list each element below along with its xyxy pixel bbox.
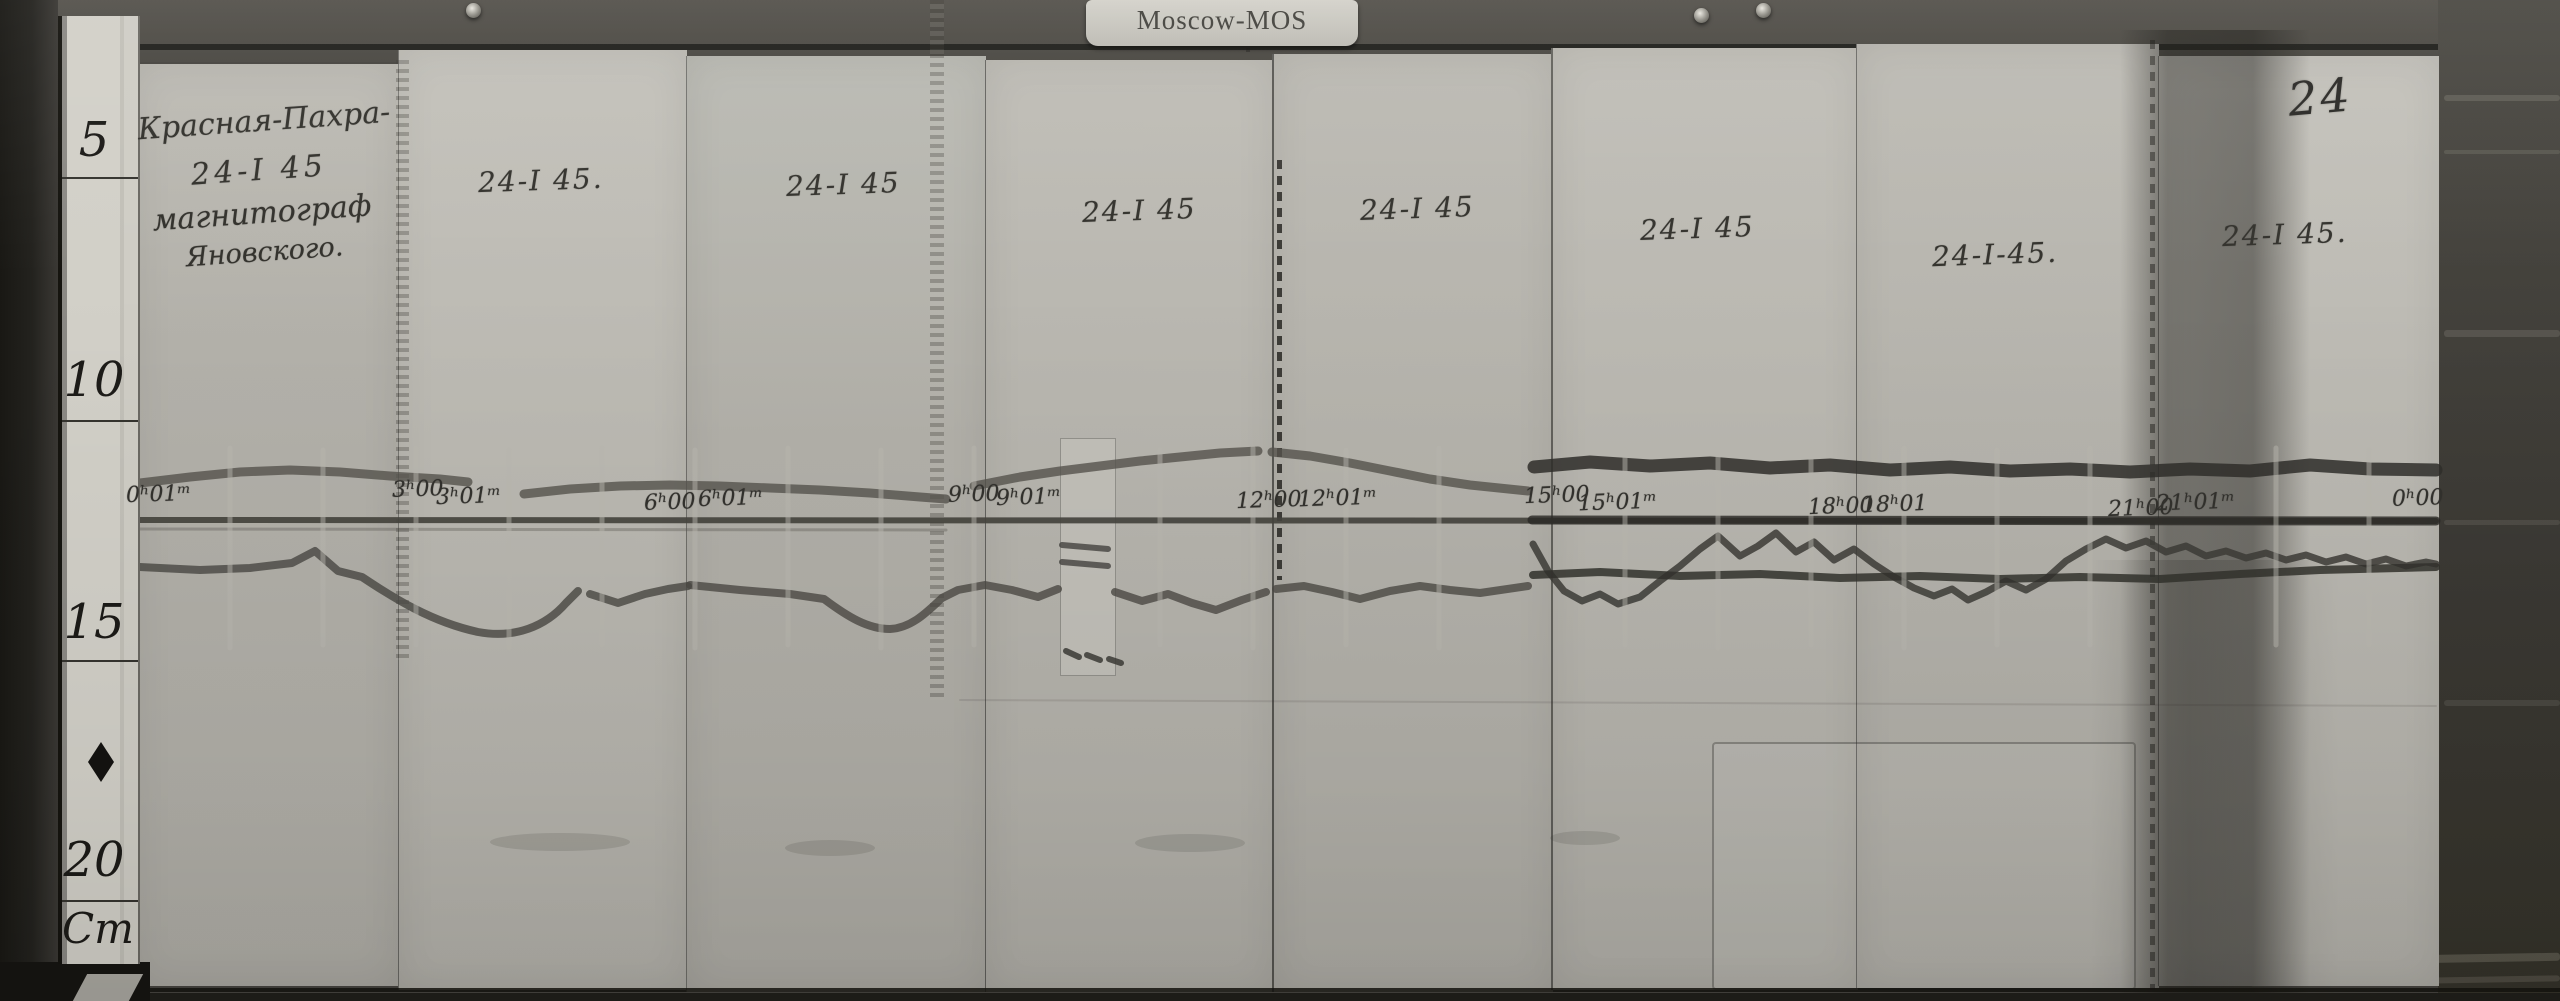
mounting-pin — [1756, 3, 1771, 18]
time-mark: 6ʰ00 — [644, 489, 696, 516]
mounting-pin — [466, 3, 481, 18]
strip-date-label: 24-I-45. — [1931, 236, 2058, 273]
time-mark: 6ʰ01ᵐ — [698, 485, 764, 512]
ruler-mark-15: 15 — [62, 594, 126, 650]
ruler-tick-line — [62, 420, 138, 422]
stitched-seam — [1277, 160, 1282, 580]
time-mark: 21ʰ01ᵐ — [2156, 489, 2236, 517]
ruler-mark-20: 20 — [62, 832, 126, 888]
archive-tag-label: Moscow-MOS — [1137, 5, 1308, 35]
strip-date-label: 24-I 45 — [1081, 192, 1197, 229]
bottom-frame-line — [140, 988, 2560, 992]
time-mark: 9ʰ00 — [948, 481, 1000, 508]
gauze-seam — [930, 0, 944, 700]
glass-plate-outline — [1712, 742, 2136, 990]
station-annotation: Красная-Пахра- 24-I 45 магнитограф Яновс… — [137, 96, 384, 276]
ruler-mark-10: 10 — [62, 352, 126, 408]
time-mark: 0ʰ00 — [2392, 485, 2444, 512]
sheet-number: 24 — [2286, 67, 2355, 126]
wood-right-edge — [2438, 0, 2560, 1001]
mounting-pin — [1694, 8, 1709, 23]
pasted-patch — [1060, 438, 1116, 676]
station-annotation-line: 24-I 45 — [140, 145, 378, 196]
bottom-wood-band — [0, 993, 2560, 1001]
ruler-mark-5: 5 — [62, 112, 126, 168]
ruler-unit-label: Cm — [62, 904, 126, 953]
wood-left-edge — [0, 0, 58, 1001]
strip-date-label: 24-I 45 — [1359, 190, 1475, 227]
time-mark: 0ʰ01ᵐ — [126, 481, 192, 508]
gauze-seam — [396, 60, 409, 660]
strip-date-label: 24-I 45. — [477, 162, 604, 199]
magnetogram-photo: 5 10 15 20 Cm Moscow-MOS 24 Красная-Пахр… — [0, 0, 2560, 1001]
time-mark: 12ʰ00 — [1236, 487, 1302, 514]
ruler-tick-line — [62, 900, 138, 902]
strip-date-label: 24-I 45 — [785, 166, 901, 203]
strip-date-label: 24-I 45 — [1639, 210, 1755, 247]
ruler-tick-line — [62, 660, 138, 662]
strip-date-label: 24-I 45. — [2221, 216, 2348, 253]
time-mark: 15ʰ01ᵐ — [1578, 489, 1658, 517]
time-mark: 9ʰ01ᵐ — [996, 484, 1062, 511]
time-mark: 3ʰ01ᵐ — [436, 483, 502, 510]
archive-tag: Moscow-MOS — [1086, 0, 1358, 46]
ruler-tick-line — [62, 177, 138, 179]
time-mark: 12ʰ01ᵐ — [1298, 485, 1378, 513]
time-mark: 18ʰ01 — [1862, 491, 1928, 518]
diamond-mark-icon — [88, 742, 114, 782]
